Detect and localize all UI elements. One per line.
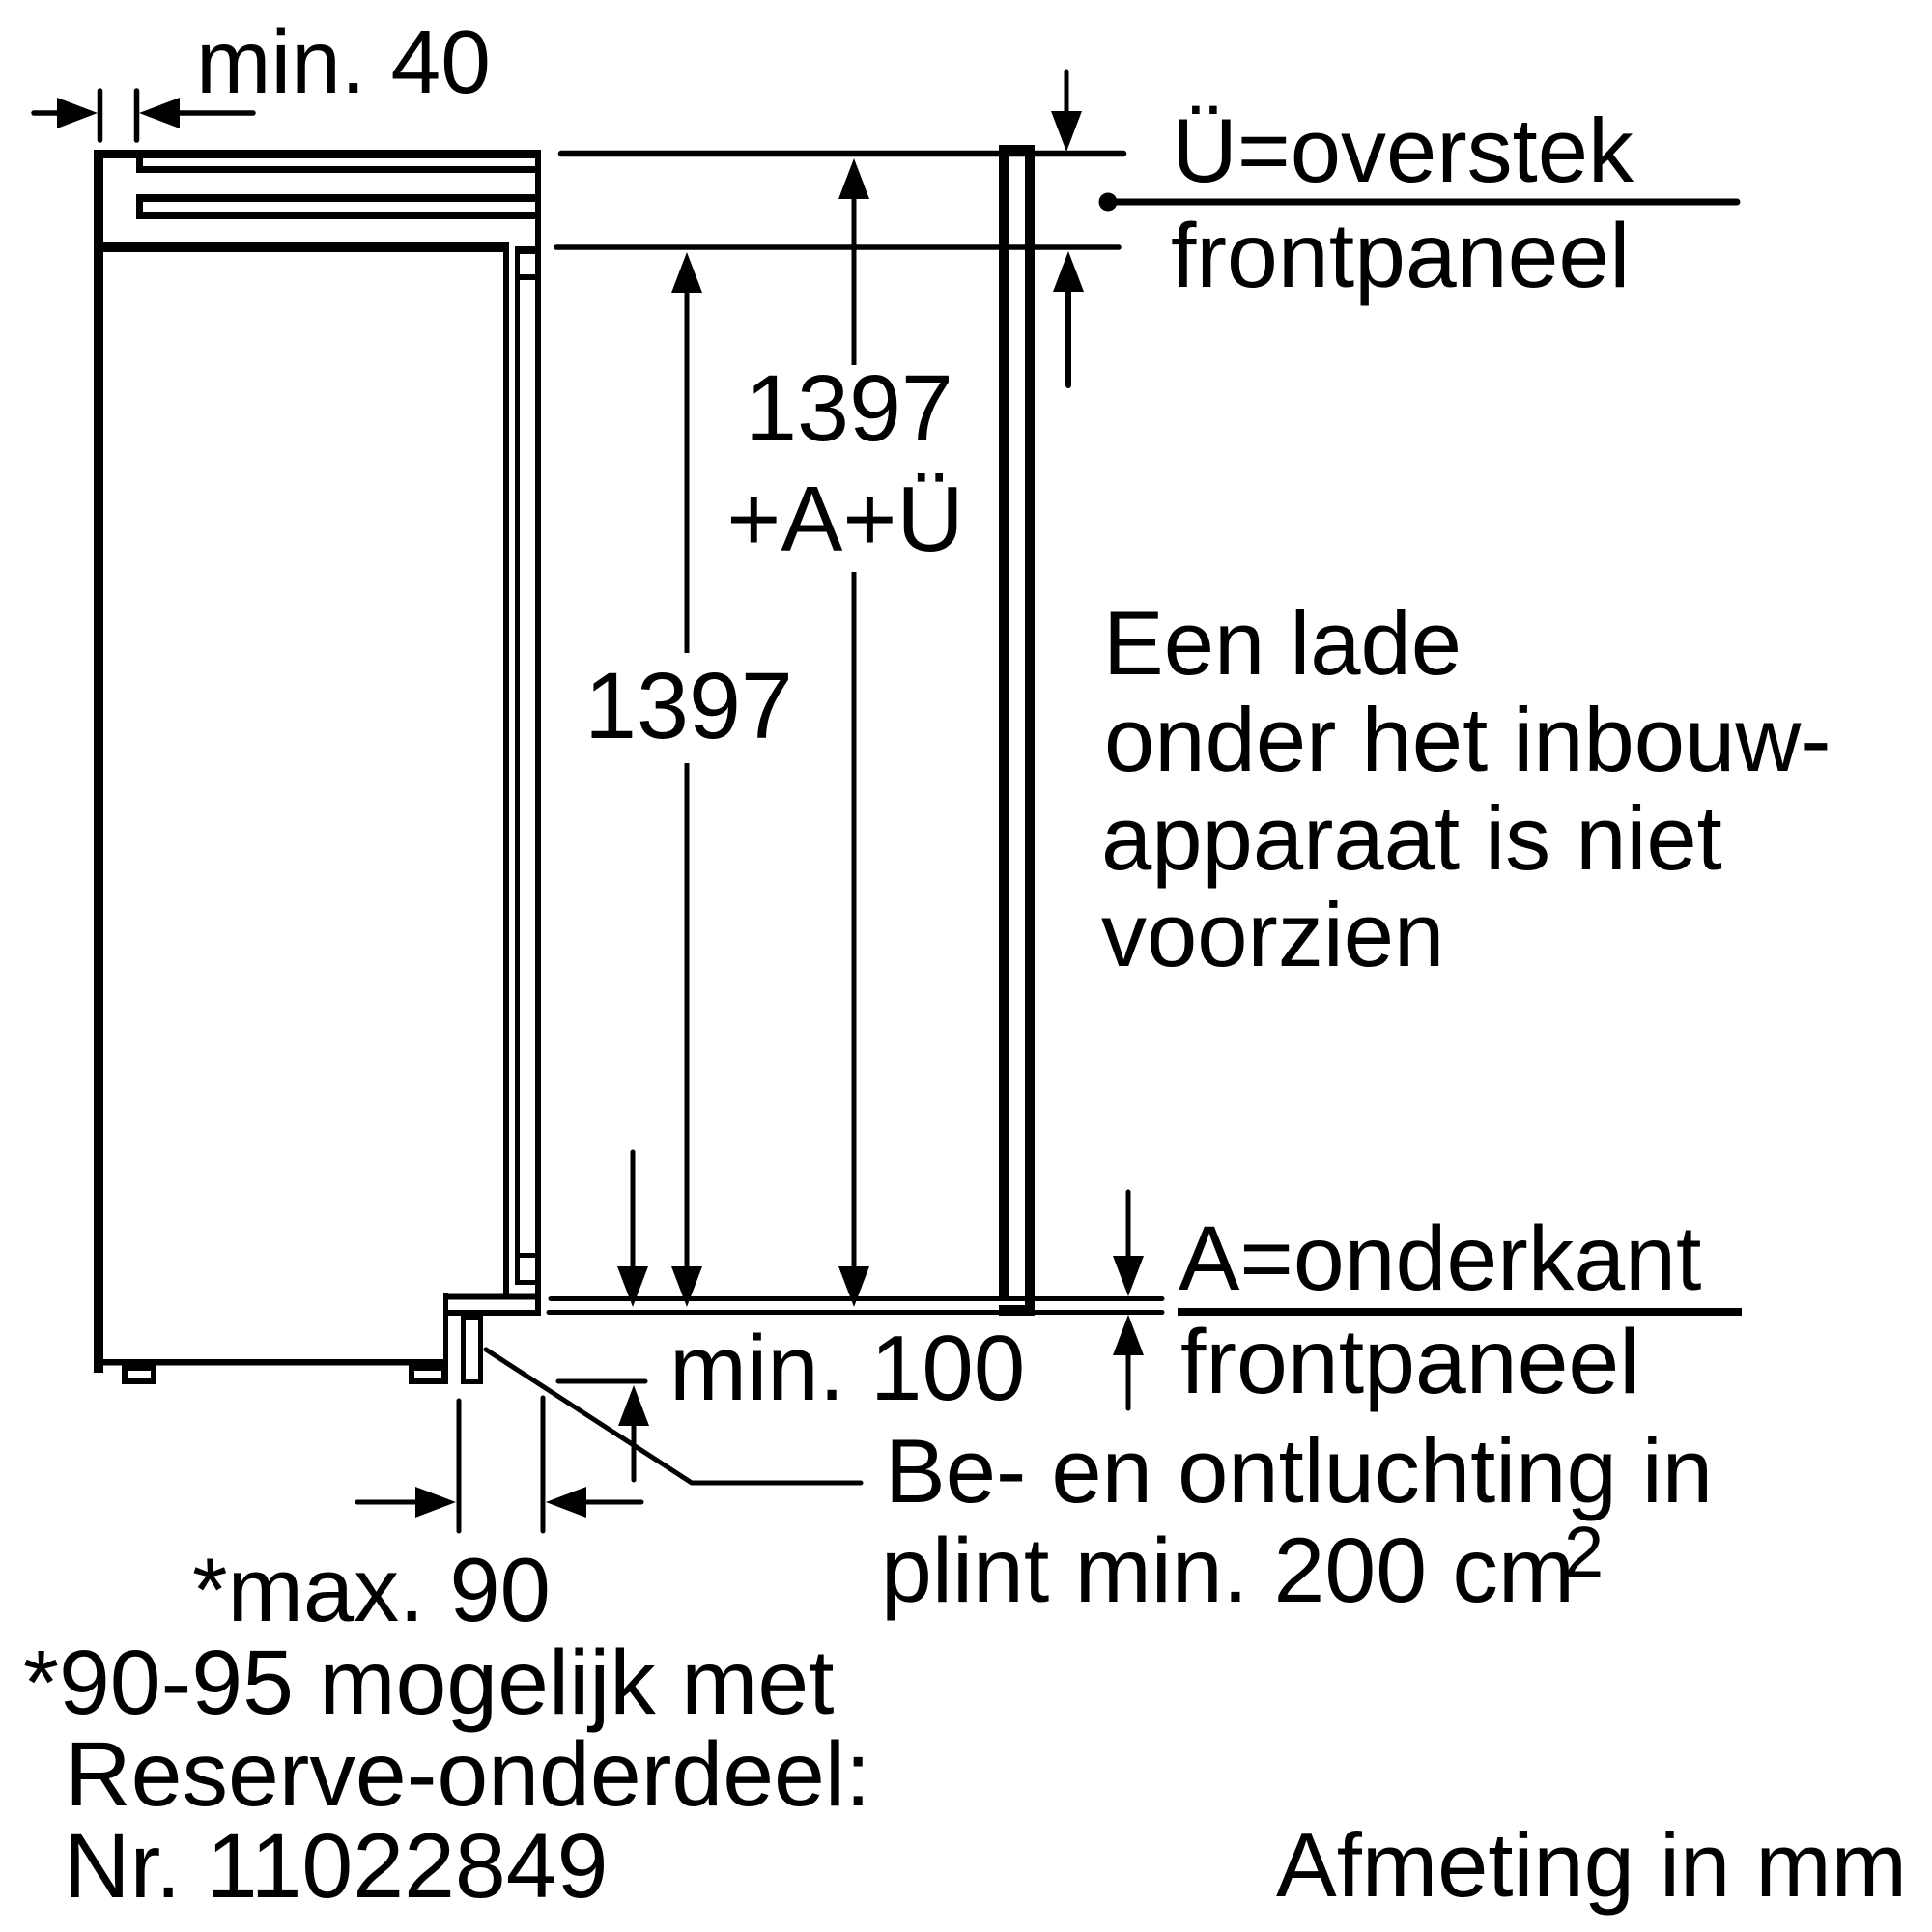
svg-text:voorzien: voorzien — [1101, 884, 1444, 985]
svg-text:1397: 1397 — [745, 355, 953, 461]
svg-text:*max. 90: *max. 90 — [192, 1539, 551, 1640]
svg-text:Be- en ontluchting in: Be- en ontluchting in — [885, 1420, 1713, 1521]
svg-text:Nr. 11022849: Nr. 11022849 — [64, 1815, 608, 1918]
svg-text:plint min. 200 cm: plint min. 200 cm — [881, 1520, 1575, 1622]
svg-text:Ü=overstek: Ü=overstek — [1172, 99, 1634, 201]
svg-text:onder het inbouw-: onder het inbouw- — [1104, 689, 1832, 790]
svg-text:2: 2 — [1564, 1512, 1604, 1592]
svg-text:frontpaneel: frontpaneel — [1171, 205, 1630, 307]
svg-text:min. 100: min. 100 — [669, 1317, 1025, 1420]
svg-text:apparaat is niet: apparaat is niet — [1101, 787, 1722, 889]
svg-text:Reserve-onderdeel:: Reserve-onderdeel: — [65, 1723, 870, 1826]
svg-text:Een lade: Een lade — [1103, 592, 1462, 694]
svg-text:*90-95 mogelijk met: *90-95 mogelijk met — [23, 1632, 835, 1734]
svg-text:frontpaneel: frontpaneel — [1180, 1311, 1639, 1413]
svg-text:1397: 1397 — [584, 653, 793, 758]
svg-text:Afmeting in mm: Afmeting in mm — [1276, 1814, 1907, 1916]
svg-text:A=onderkant: A=onderkant — [1179, 1207, 1701, 1310]
svg-text:+A+Ü: +A+Ü — [726, 468, 963, 571]
svg-text:min. 40: min. 40 — [196, 12, 491, 112]
